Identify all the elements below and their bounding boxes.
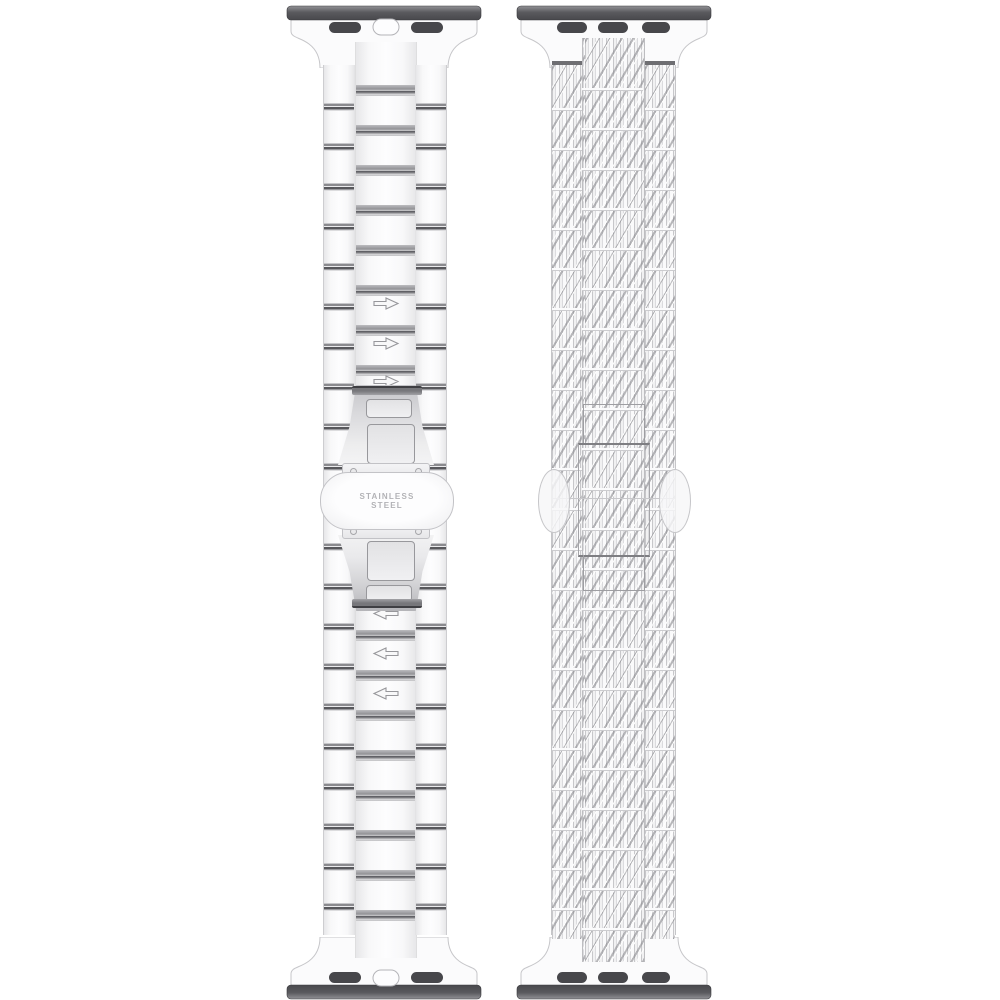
mesh-joint-line (582, 608, 643, 611)
mesh-joint-line (582, 288, 643, 291)
mesh-joint-line (552, 188, 582, 191)
mesh-joint-line (552, 348, 582, 351)
mesh-joint-line (552, 228, 582, 231)
link-joint (356, 125, 416, 136)
link-joint (324, 743, 354, 751)
mesh-joint-line (582, 768, 643, 771)
mesh-joint-line (645, 708, 675, 711)
engraving-text-line1: STAINLESS (359, 492, 414, 501)
mesh-joint-line (645, 748, 675, 751)
link-joint (416, 703, 446, 711)
mesh-joint-line (645, 228, 675, 231)
link-joint (324, 143, 354, 151)
link-joint (356, 85, 416, 96)
link-joint (324, 303, 354, 311)
mesh-joint-line (552, 268, 582, 271)
mesh-joint-line (645, 428, 675, 431)
mesh-joint-line (645, 188, 675, 191)
mesh-joint-line (582, 88, 643, 91)
link-joint (416, 863, 446, 871)
link-joint (416, 823, 446, 831)
link-joint (416, 303, 446, 311)
mesh-joint-line (645, 908, 675, 911)
link-joint (356, 325, 416, 336)
mesh-joint-line (645, 348, 675, 351)
link-joint (416, 103, 446, 111)
link-joint (324, 103, 354, 111)
link-joint (416, 223, 446, 231)
link-joint (356, 710, 416, 721)
link-joint (416, 583, 446, 591)
link-joint (324, 863, 354, 871)
arrow-left-icon (372, 686, 400, 701)
link-joint (324, 623, 354, 631)
mesh-joint-line (552, 628, 582, 631)
clasp-cutout-large-lower (367, 541, 415, 581)
mesh-joint-line (552, 108, 582, 111)
link-joint (416, 343, 446, 351)
mesh-joint-line (552, 788, 582, 791)
mesh-joint-line (645, 788, 675, 791)
mesh-joint-line (552, 828, 582, 831)
clasp-arm-lower-bar (352, 599, 422, 608)
link-joint (324, 583, 354, 591)
mesh-joint-line (645, 388, 675, 391)
link-joint (416, 743, 446, 751)
link-joint (416, 663, 446, 671)
mesh-joint-line (552, 668, 582, 671)
link-joint (356, 285, 416, 296)
mesh-joint-line (582, 728, 643, 731)
clasp-side-bulge-left (538, 469, 570, 533)
mesh-joint-line (582, 888, 643, 891)
clasp-back-outline-upper (583, 404, 645, 444)
link-joint (356, 750, 416, 761)
link-joint (416, 783, 446, 791)
mesh-joint-line (645, 588, 675, 591)
clasp-back-outline-lower (583, 555, 645, 591)
link-joint (356, 790, 416, 801)
mesh-joint-line (552, 708, 582, 711)
clasp-back-outline-middle (578, 443, 650, 557)
link-joint (324, 903, 354, 911)
mesh-joint-line (645, 308, 675, 311)
mesh-joint-line (645, 828, 675, 831)
mesh-joint-line (645, 868, 675, 871)
mesh-joint-line (645, 268, 675, 271)
mesh-joint-line (552, 148, 582, 151)
mesh-joint-line (582, 168, 643, 171)
link-joint (356, 245, 416, 256)
product-image-watch-bands: STAINLESS STEEL (0, 0, 1000, 1000)
mesh-joint-line (552, 748, 582, 751)
link-joint (416, 903, 446, 911)
mesh-joint-line (582, 648, 643, 651)
link-joint (324, 223, 354, 231)
link-joint (324, 343, 354, 351)
clasp-cutout-large-upper (367, 424, 415, 464)
mesh-joint-line (552, 308, 582, 311)
mesh-joint-line (552, 908, 582, 911)
mesh-joint-line (582, 368, 643, 371)
mesh-joint-line (582, 808, 643, 811)
link-joint (356, 630, 416, 641)
link-joint (324, 663, 354, 671)
clasp-cutout-small-upper (366, 399, 412, 418)
link-joint (416, 143, 446, 151)
mesh-joint-line (582, 328, 643, 331)
mesh-joint-line (582, 248, 643, 251)
mesh-joint-line (552, 388, 582, 391)
mesh-joint-line (582, 688, 643, 691)
mesh-joint-line (582, 848, 643, 851)
arrow-right-icon (372, 296, 400, 311)
link-joint (356, 870, 416, 881)
mesh-joint-line (552, 428, 582, 431)
link-joint (416, 623, 446, 631)
link-joint (324, 783, 354, 791)
mesh-joint-line (552, 868, 582, 871)
mesh-joint-line (582, 928, 643, 931)
mesh-joint-line (582, 128, 643, 131)
clasp-back-center-line (552, 498, 675, 499)
link-joint (356, 670, 416, 681)
link-joint (324, 263, 354, 271)
mesh-joint-line (582, 208, 643, 211)
link-joint (324, 823, 354, 831)
mesh-joint-line (645, 148, 675, 151)
mesh-joint-line (645, 108, 675, 111)
clasp-arm-upper-bar (352, 386, 422, 395)
clasp-cover-plate: STAINLESS STEEL (320, 472, 454, 530)
link-joint (324, 703, 354, 711)
link-joint (324, 183, 354, 191)
link-joint (324, 383, 354, 391)
link-joint (356, 830, 416, 841)
link-joint (356, 910, 416, 921)
arrow-left-icon (372, 646, 400, 661)
arrow-right-icon (372, 336, 400, 351)
link-joint (416, 263, 446, 271)
link-joint (356, 165, 416, 176)
mesh-joint-line (645, 628, 675, 631)
link-joint (416, 183, 446, 191)
link-joint (356, 205, 416, 216)
engraving-text-line2: STEEL (371, 501, 403, 510)
mesh-joint-line (645, 668, 675, 671)
clasp-side-bulge-right (659, 469, 691, 533)
mesh-joint-line (552, 588, 582, 591)
